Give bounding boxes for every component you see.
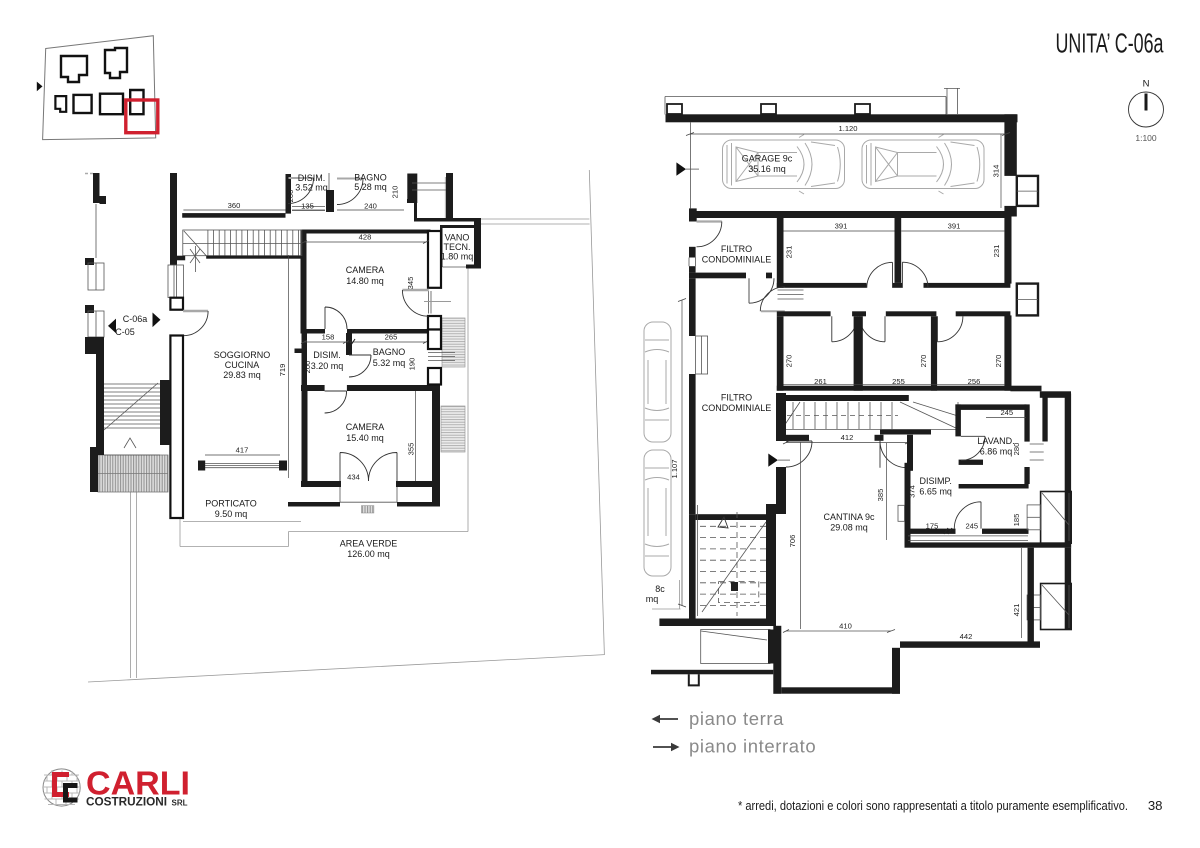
svg-text:9.50 mq: 9.50 mq	[215, 509, 248, 519]
svg-text:385: 385	[876, 489, 885, 502]
svg-text:434: 434	[347, 473, 360, 482]
svg-text:5.32 mq: 5.32 mq	[373, 358, 406, 368]
svg-text:FILTRO: FILTRO	[721, 244, 752, 254]
svg-text:BAGNO: BAGNO	[373, 347, 406, 357]
svg-text:719: 719	[278, 364, 287, 377]
svg-text:245: 245	[1000, 408, 1013, 417]
svg-text:210: 210	[391, 186, 400, 199]
svg-text:360: 360	[228, 201, 241, 210]
svg-text:14.80 mq: 14.80 mq	[346, 276, 384, 286]
svg-text:DISIM.: DISIM.	[313, 350, 341, 360]
svg-text:126.00 mq: 126.00 mq	[347, 549, 390, 559]
svg-text:CANTINA 9c: CANTINA 9c	[823, 512, 875, 522]
svg-text:1.120: 1.120	[838, 124, 857, 133]
svg-text:428: 428	[359, 233, 372, 242]
svg-text:412: 412	[841, 433, 854, 442]
svg-text:38: 38	[1148, 798, 1163, 813]
svg-text:314: 314	[992, 165, 1001, 178]
svg-text:BAGNO: BAGNO	[354, 173, 387, 183]
svg-text:SOGGIORNO: SOGGIORNO	[214, 350, 271, 360]
svg-text:417: 417	[236, 446, 249, 455]
svg-text:442: 442	[960, 632, 973, 641]
svg-text:VANO: VANO	[445, 233, 470, 243]
svg-text:185: 185	[1012, 514, 1021, 527]
svg-text:6.65 mq: 6.65 mq	[919, 487, 952, 497]
svg-text:280: 280	[1012, 443, 1021, 456]
svg-text:345: 345	[406, 277, 415, 290]
svg-text:C-05: C-05	[115, 327, 135, 337]
svg-text:706: 706	[788, 535, 797, 548]
svg-text:3.20 mq: 3.20 mq	[311, 361, 344, 371]
svg-text:1:100: 1:100	[1135, 133, 1157, 143]
svg-text:* arredi, dotazioni e colori s: * arredi, dotazioni e colori sono rappre…	[738, 799, 1128, 813]
svg-text:mq: mq	[646, 594, 659, 604]
svg-text:29.08 mq: 29.08 mq	[830, 523, 868, 533]
svg-text:256: 256	[968, 377, 981, 386]
svg-text:391: 391	[948, 222, 961, 231]
svg-text:158: 158	[322, 333, 335, 342]
svg-text:374: 374	[908, 485, 917, 498]
svg-text:175: 175	[926, 521, 939, 530]
svg-text:C-06a: C-06a	[123, 314, 148, 324]
svg-text:8c: 8c	[655, 584, 665, 594]
svg-text:355: 355	[407, 443, 416, 456]
svg-text:TECN.: TECN.	[444, 242, 471, 252]
svg-text:261: 261	[814, 377, 827, 386]
svg-text:200: 200	[286, 190, 295, 203]
svg-text:1.107: 1.107	[670, 459, 679, 478]
svg-text:3.52 mq: 3.52 mq	[295, 183, 328, 193]
svg-text:255: 255	[892, 377, 905, 386]
svg-text:410: 410	[839, 622, 852, 631]
svg-text:DISIM.: DISIM.	[298, 173, 326, 183]
svg-text:421: 421	[1012, 604, 1021, 617]
svg-text:CAMERA: CAMERA	[346, 265, 385, 275]
svg-text:270: 270	[919, 355, 928, 368]
svg-text:6.86 mq: 6.86 mq	[980, 447, 1013, 457]
svg-text:240: 240	[364, 202, 377, 211]
svg-text:200: 200	[303, 361, 312, 374]
svg-text:FILTRO: FILTRO	[721, 393, 752, 403]
svg-text:CONDOMINIALE: CONDOMINIALE	[702, 255, 772, 265]
svg-text:270: 270	[994, 355, 1003, 368]
svg-text:CUCINA: CUCINA	[225, 360, 260, 370]
svg-text:PORTICATO: PORTICATO	[205, 499, 257, 509]
svg-text:265: 265	[385, 333, 398, 342]
svg-text:5.28 mq: 5.28 mq	[354, 182, 387, 192]
svg-text:270: 270	[785, 355, 794, 368]
svg-text:N: N	[1143, 79, 1150, 90]
svg-text:piano terra: piano terra	[689, 708, 784, 729]
svg-text:GARAGE 9c: GARAGE 9c	[742, 154, 793, 164]
svg-text:CAMERA: CAMERA	[346, 422, 385, 432]
svg-text:DISIMP.: DISIMP.	[920, 476, 952, 486]
svg-text:UNITA’ C-06a: UNITA’ C-06a	[1056, 28, 1164, 59]
svg-text:15.40 mq: 15.40 mq	[346, 433, 384, 443]
svg-text:231: 231	[785, 246, 794, 259]
svg-text:piano interrato: piano interrato	[689, 736, 816, 757]
svg-text:1.80 mq: 1.80 mq	[441, 252, 474, 262]
svg-text:391: 391	[835, 222, 848, 231]
svg-text:LAVAND.: LAVAND.	[977, 436, 1014, 446]
svg-text:35.16 mq: 35.16 mq	[748, 164, 786, 174]
svg-text:245: 245	[965, 521, 978, 530]
svg-text:SRL: SRL	[172, 799, 188, 808]
svg-text:135: 135	[301, 202, 314, 211]
svg-text:231: 231	[992, 245, 1001, 258]
svg-text:29.83 mq: 29.83 mq	[223, 370, 261, 380]
svg-text:CONDOMINIALE: CONDOMINIALE	[702, 403, 772, 413]
svg-text:COSTRUZIONI: COSTRUZIONI	[86, 797, 167, 809]
svg-text:AREA VERDE: AREA VERDE	[340, 539, 398, 549]
svg-text:190: 190	[408, 358, 417, 371]
